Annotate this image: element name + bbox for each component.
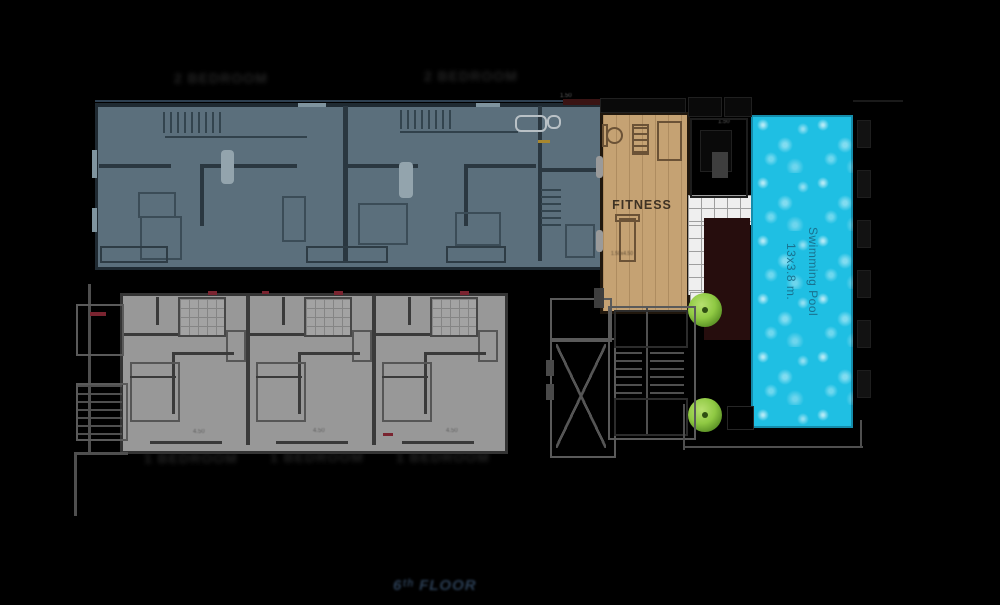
wall [424, 352, 486, 355]
wall [343, 106, 348, 261]
wall [408, 297, 411, 325]
floor-watermark: 6ᵗʰ FLOOR [393, 577, 477, 594]
floor-plan: 2 BEDROOM 2 BEDROOM 1 BEDROOM 1 BEDROOM … [0, 0, 1000, 605]
wall [250, 333, 304, 336]
pool-label: Swimming Pool 13x3.8 m. [780, 227, 823, 316]
bed [256, 362, 306, 422]
bed-line [382, 376, 428, 378]
stairs-hatch [541, 188, 561, 226]
walk-line [683, 404, 685, 450]
door-leaf [399, 162, 413, 198]
stairs-hatch [400, 110, 456, 129]
wall [246, 296, 250, 445]
faint-column [857, 270, 871, 298]
wall-line [74, 452, 77, 516]
balcony [306, 246, 388, 263]
door-marker [208, 291, 217, 295]
wall-line [74, 452, 128, 455]
swimming-pool: Swimming Pool 13x3.8 m. [751, 115, 853, 428]
core-room [614, 398, 688, 436]
faint-column [857, 120, 871, 148]
wall [376, 333, 430, 336]
exercise-machine-icon [606, 127, 623, 144]
faint-column [857, 370, 871, 398]
wall [124, 333, 178, 336]
elevator-frame [550, 338, 616, 458]
fitness-dim-text: 1.50x4.50 [598, 251, 646, 257]
walk-line [683, 446, 863, 448]
balcony-rail [276, 441, 348, 444]
door-marker [334, 291, 343, 295]
balcony-rail [150, 441, 222, 444]
wall [468, 164, 536, 168]
faint-column [857, 320, 871, 348]
furniture [282, 196, 306, 242]
faint-line [853, 100, 903, 102]
furniture [358, 203, 408, 245]
bath-fixture [515, 115, 547, 132]
bed-line [256, 376, 302, 378]
corner-block [594, 288, 604, 308]
faint-column [857, 220, 871, 248]
bed [130, 362, 180, 422]
door-leaf [221, 150, 234, 184]
pool-corner-ledge [727, 406, 754, 430]
wall [99, 164, 171, 168]
top-building-roofline [95, 100, 598, 102]
core-room [614, 310, 688, 348]
furniture [565, 224, 595, 258]
bench-bar-icon [615, 214, 640, 222]
exercise-machine-bar-icon [602, 124, 608, 147]
door-tab [546, 360, 554, 376]
wall [172, 352, 234, 355]
stairs-hatch [616, 350, 642, 394]
furniture [455, 212, 501, 246]
dim-text: 4.50 [446, 428, 458, 434]
stairs-hatch [163, 112, 225, 133]
furniture [138, 192, 176, 218]
dim-text: 4.50 [313, 428, 325, 434]
pool-deck-tiles [688, 225, 705, 295]
wall [372, 296, 376, 445]
closet [712, 152, 728, 178]
faint-column [857, 170, 871, 198]
unit-label-top-1: 2 BEDROOM [174, 70, 268, 86]
kitchen-unit [226, 330, 246, 362]
fitness-label: FITNESS [600, 198, 684, 212]
marker [538, 140, 550, 143]
treadmill-icon [657, 121, 682, 161]
pool-name: Swimming Pool [802, 227, 824, 316]
wall [156, 297, 159, 325]
kitchen-unit [478, 330, 498, 362]
stairs-hatch [78, 385, 122, 435]
wall [542, 168, 596, 172]
stairs-hatch [650, 350, 684, 394]
bed-line [130, 376, 176, 378]
wall [200, 164, 297, 168]
door-leaf [596, 230, 603, 252]
wall-streak [563, 99, 600, 105]
bath-fixture [547, 115, 561, 129]
door-leaf [596, 156, 603, 178]
bathroom-tiles [430, 297, 478, 337]
stair-line [400, 131, 518, 133]
kitchen-unit [352, 330, 372, 362]
window-gap [92, 150, 97, 178]
bed [382, 362, 432, 422]
window-gap [92, 208, 97, 232]
walk-line [860, 420, 862, 448]
wall [200, 164, 204, 226]
pool-size: 13x3.8 m. [780, 227, 802, 316]
weight-stack-icon [632, 124, 649, 155]
dark-room [600, 98, 686, 113]
bathroom-tiles [178, 297, 226, 337]
door-marker [383, 433, 393, 436]
window-gap [298, 103, 326, 107]
tree-center [702, 412, 708, 418]
balcony [446, 246, 506, 263]
door-marker [460, 291, 469, 295]
unit-label-top-2: 2 BEDROOM [424, 68, 518, 84]
door-tab [546, 384, 554, 400]
window-gap [476, 103, 500, 107]
dark-room [724, 97, 752, 117]
balcony-rail [402, 441, 474, 444]
wall [282, 297, 285, 325]
bathroom-tiles [304, 297, 352, 337]
stair-line [165, 136, 307, 138]
tree-center [702, 307, 708, 313]
door-marker [262, 291, 269, 294]
dim-text: 4.50 [193, 429, 205, 435]
wall [298, 352, 360, 355]
door-marker [90, 312, 106, 316]
dark-room [688, 97, 722, 117]
balcony [100, 246, 168, 263]
